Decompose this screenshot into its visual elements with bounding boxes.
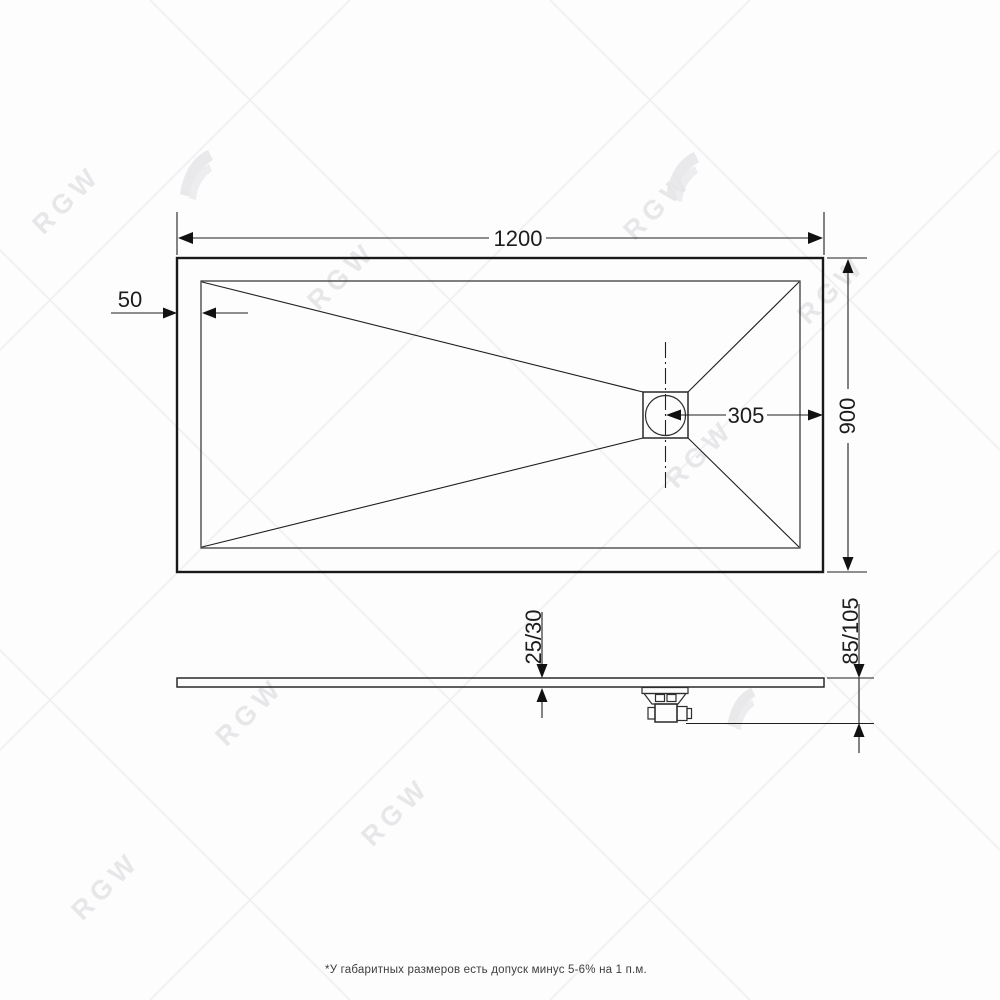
drawing-canvas: RGW RGW RGW RGW RGW RGW RGW RGW 1200 bbox=[0, 0, 1000, 1000]
watermark-text: RGW bbox=[26, 159, 107, 240]
dim-edge-label: 50 bbox=[118, 287, 142, 312]
arrowhead-left bbox=[666, 410, 681, 421]
watermark-lattice bbox=[0, 0, 1000, 1000]
dim-height-85-105: 85/105 bbox=[686, 597, 874, 753]
lattice-line bbox=[150, 150, 1000, 1000]
technical-drawing: RGW RGW RGW RGW RGW RGW RGW RGW 1200 bbox=[0, 0, 1000, 1000]
slope-line-bottom-right bbox=[688, 438, 799, 547]
lattice-line bbox=[0, 0, 350, 350]
arrowhead-down bbox=[843, 557, 854, 571]
arrowhead-down bbox=[537, 664, 548, 678]
side-view: 25/30 85/105 bbox=[177, 597, 874, 753]
slope-line-top-left bbox=[202, 282, 643, 392]
arrowhead-left bbox=[178, 232, 193, 244]
rgw-logo-icon bbox=[180, 150, 213, 200]
lattice-line bbox=[0, 0, 750, 750]
lattice-line bbox=[550, 550, 1000, 1000]
arrowhead-right bbox=[163, 308, 177, 319]
trap-flange bbox=[642, 688, 688, 694]
arrowhead-down bbox=[854, 664, 865, 678]
arrowhead-left bbox=[202, 308, 216, 319]
footer-tolerance-note: *У габаритных размеров есть допуск минус… bbox=[325, 964, 647, 976]
dim-width-1200: 1200 bbox=[177, 212, 824, 255]
trap-left-tab bbox=[648, 708, 655, 720]
dim-width-label: 1200 bbox=[494, 226, 543, 251]
watermark-text: RGW bbox=[65, 845, 146, 926]
dim-thickness-25-30: 25/30 bbox=[521, 609, 548, 718]
trap-outlet-stub bbox=[687, 709, 692, 719]
lattice-line bbox=[0, 650, 350, 1000]
watermark-text: RGW bbox=[209, 671, 290, 752]
arrowhead-up bbox=[854, 723, 865, 737]
arrowhead-right bbox=[808, 232, 823, 244]
top-view: 1200 50 305 900 bbox=[111, 212, 867, 572]
dim-drain-label: 305 bbox=[728, 403, 765, 428]
trap-slot bbox=[656, 695, 665, 702]
trap-outlet-pipe bbox=[677, 707, 687, 721]
arrowhead-right bbox=[808, 410, 823, 421]
dim-depth-label: 900 bbox=[835, 398, 860, 435]
trap-body bbox=[655, 704, 677, 722]
watermark-text: RGW bbox=[301, 235, 382, 316]
dim-height-label: 85/105 bbox=[838, 597, 863, 664]
trap-slot bbox=[667, 695, 676, 702]
dim-edge-50: 50 bbox=[111, 287, 248, 319]
drain-trap bbox=[642, 688, 692, 723]
watermark-layer: RGW RGW RGW RGW RGW RGW RGW RGW bbox=[0, 0, 1000, 1000]
lattice-line bbox=[150, 0, 1000, 850]
arrowhead-up bbox=[537, 688, 548, 702]
slope-line-bottom-left bbox=[202, 438, 643, 547]
watermark-text: RGW bbox=[617, 165, 698, 246]
dim-thickness-label: 25/30 bbox=[521, 609, 546, 664]
slope-line-top-right bbox=[688, 282, 799, 392]
